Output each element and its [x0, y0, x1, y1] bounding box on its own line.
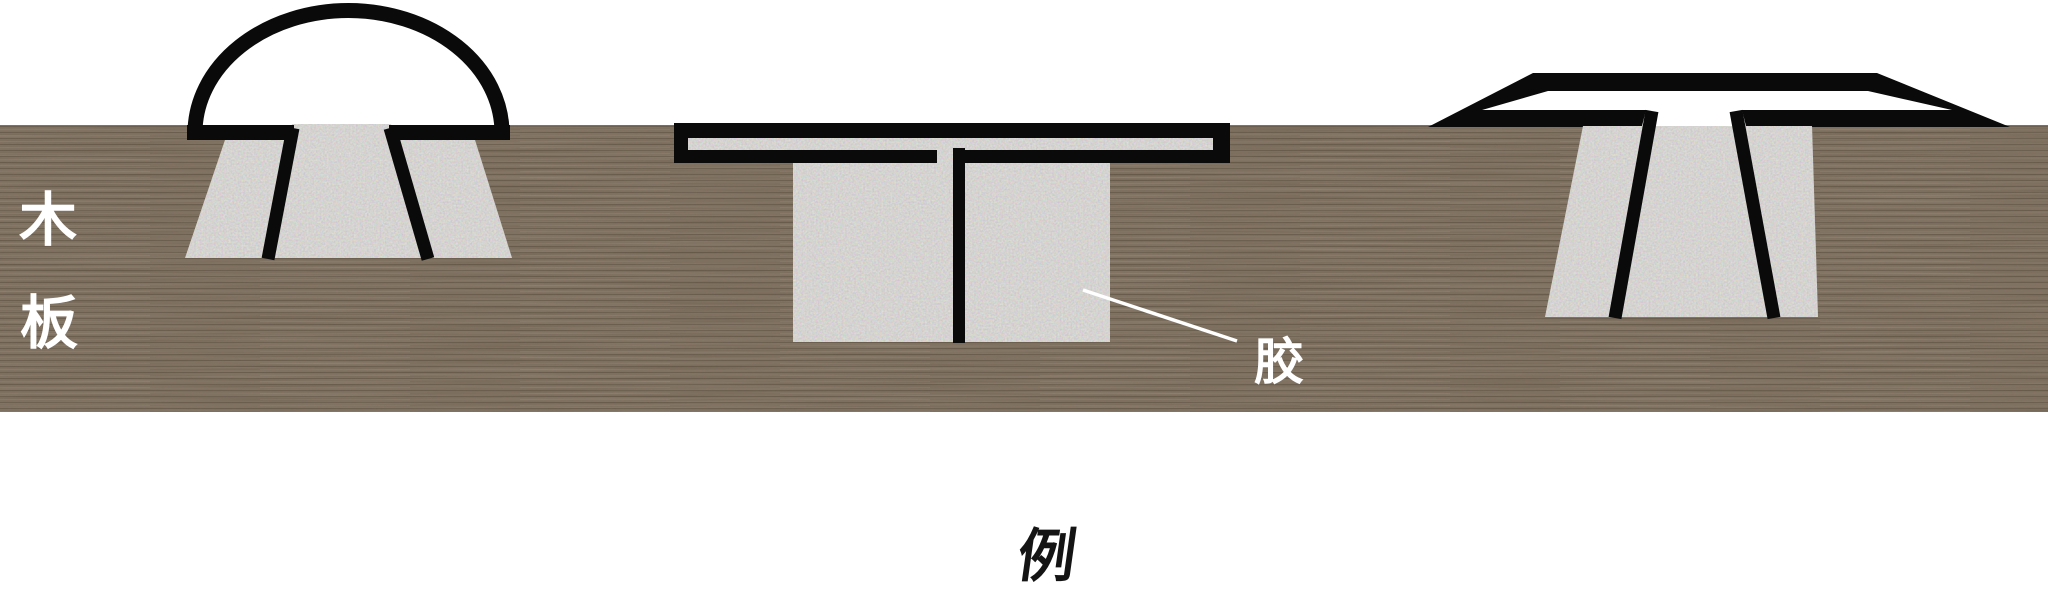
glue-trapezoid [1545, 126, 1818, 317]
glue-gap-under-cap [288, 124, 395, 142]
diagram-stage: 胶 木 板 例 [0, 0, 2048, 605]
glue-notch [937, 150, 953, 165]
dome-glue-pocket [185, 124, 512, 258]
board-label-char1: 木 [19, 186, 77, 254]
glue-label: 胶 [1254, 333, 1304, 391]
glue-trapezoid [185, 140, 512, 258]
tee-stem [953, 148, 965, 343]
dome-cap-joint [185, 11, 512, 259]
board-label-char2: 板 [20, 289, 78, 357]
glue-strip-in-bar [688, 138, 1213, 150]
wood-joints-diagram: 胶 木 板 例 [0, 0, 2048, 605]
dome-foot-right [389, 125, 510, 140]
dome-foot-left [187, 125, 294, 140]
caption-label: 例 [1013, 522, 1081, 590]
glue-block [793, 163, 1110, 342]
flared-glue [1545, 126, 1818, 317]
